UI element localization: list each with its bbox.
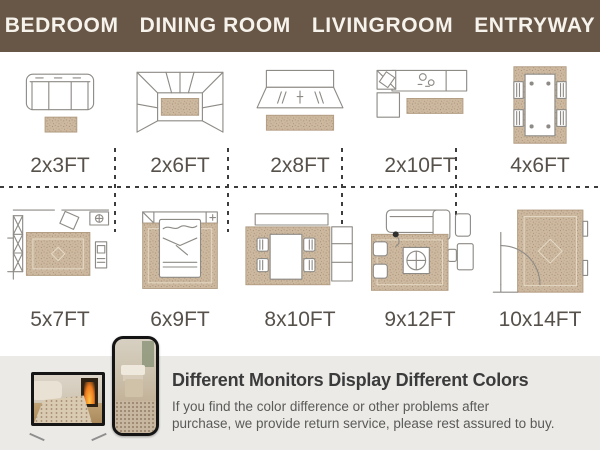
size-option-4x6ft: 4x6FT <box>480 56 600 178</box>
phone-mockup-image <box>112 336 159 436</box>
size-grid-bottom-row: 5x7FT 6x9FT <box>0 198 600 332</box>
rug-size-guide-image: BEDROOM DINING ROOM LIVINGROOM ENTRYWAY … <box>0 0 600 450</box>
kitchen-island-runner-diagram <box>244 61 356 149</box>
disclaimer-body: If you find the color difference or othe… <box>172 398 554 432</box>
size-option-6x9ft: 6x9FT <box>120 198 240 332</box>
size-option-10x14ft: 10x14FT <box>480 198 600 332</box>
size-label: 9x12FT <box>384 303 455 332</box>
size-label: 10x14FT <box>499 303 582 332</box>
tv-scene-sofa <box>31 381 62 400</box>
living-room-rug-diagram <box>364 203 476 303</box>
bedroom-floorplan-rug-diagram <box>4 203 116 303</box>
size-label: 2x3FT <box>30 149 90 178</box>
horizontal-dashed-divider <box>0 186 600 188</box>
phone-screen <box>115 339 156 433</box>
size-option-9x12ft: 9x12FT <box>360 198 480 332</box>
size-option-8x10ft: 8x10FT <box>240 198 360 332</box>
l-shaped-kitchen-runner-diagram <box>364 61 476 149</box>
size-option-5x7ft: 5x7FT <box>0 198 120 332</box>
size-grid-top-row: 2x3FT 2x6FT <box>0 56 600 178</box>
bed-on-rug-diagram <box>124 203 236 303</box>
tv-scene-fire <box>84 382 95 404</box>
size-option-2x6ft: 2x6FT <box>120 56 240 178</box>
phone-scene-window <box>142 341 154 367</box>
room-types-banner: BEDROOM DINING ROOM LIVINGROOM ENTRYWAY <box>0 0 600 52</box>
banner-item-dining-room: DINING ROOM <box>140 14 291 38</box>
phone-scene-table <box>121 365 145 375</box>
tv-screen <box>31 372 105 426</box>
size-label: 2x8FT <box>270 149 330 178</box>
closet-perspective-runner-diagram <box>124 61 236 149</box>
dining-table-rug-diagram <box>484 61 596 149</box>
disclaimer-body-line1: If you find the color difference or othe… <box>172 398 554 415</box>
size-label: 2x6FT <box>150 149 210 178</box>
tv-mockup-image <box>31 372 105 438</box>
phone-scene-chair <box>125 379 143 397</box>
size-label: 5x7FT <box>30 303 90 332</box>
disclaimer-body-line2: purchase, we provide return service, ple… <box>172 415 554 432</box>
size-label: 4x6FT <box>510 149 570 178</box>
banner-item-bedroom: BEDROOM <box>5 14 119 38</box>
entryway-large-rug-diagram <box>484 203 596 303</box>
phone-scene-rug <box>115 401 156 433</box>
dining-set-on-rug-diagram <box>244 203 356 303</box>
size-option-2x3ft: 2x3FT <box>0 56 120 178</box>
size-option-2x10ft: 2x10FT <box>360 56 480 178</box>
size-label: 6x9FT <box>150 303 210 332</box>
size-label: 2x10FT <box>384 149 455 178</box>
banner-item-livingroom: LIVINGROOM <box>312 14 453 38</box>
sofa-with-runner-diagram <box>4 61 116 149</box>
size-label: 8x10FT <box>264 303 335 332</box>
banner-item-entryway: ENTRYWAY <box>474 14 595 38</box>
disclaimer-headline: Different Monitors Display Different Col… <box>172 370 528 391</box>
